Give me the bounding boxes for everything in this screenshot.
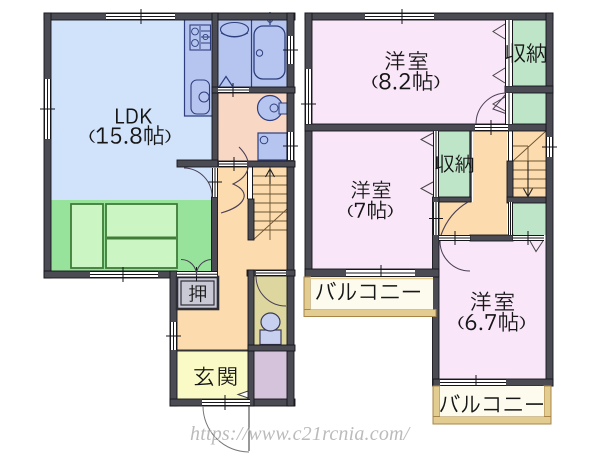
- svg-text:https://www.c21rcnia.com/: https://www.c21rcnia.com/: [190, 423, 412, 445]
